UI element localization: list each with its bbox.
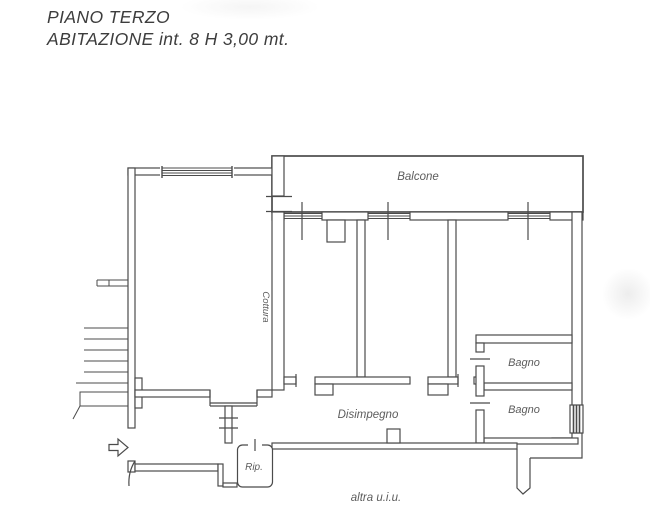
right-wall (517, 212, 582, 494)
balcony-outline (272, 156, 583, 212)
stairs (73, 280, 128, 419)
window-symbol (160, 166, 234, 178)
balcony-label: Balcone (397, 171, 439, 183)
floor-plan-drawing: Balcone Cottura Bagno Bagno Disimpegno R… (0, 0, 650, 527)
hall-stub-wall (219, 406, 238, 443)
corridor-top-wall (284, 374, 482, 395)
bathroom-window-icon (570, 405, 583, 433)
kitchen-divider-wall (266, 156, 292, 390)
bathroom-walls (470, 335, 578, 444)
left-room-walls (128, 168, 272, 486)
hallway-label: Disimpegno (338, 409, 399, 421)
entrance-walls (135, 464, 237, 487)
room-divider-walls (327, 220, 456, 377)
window-symbol (284, 202, 550, 240)
floor-plan-page: PIANO TERZO ABITAZIONE int. 8 H 3,00 mt. (0, 0, 650, 527)
bathroom-lower-label: Bagno (508, 404, 540, 416)
bathroom-upper-label: Bagno (508, 357, 540, 369)
left-room-bottom-wall (135, 390, 272, 406)
other-unit-label: altra u.i.u. (351, 492, 402, 504)
cooking-label: Cottura (260, 291, 271, 322)
entrance-arrow-icon (109, 439, 128, 456)
storage-label: Rip. (245, 462, 263, 473)
